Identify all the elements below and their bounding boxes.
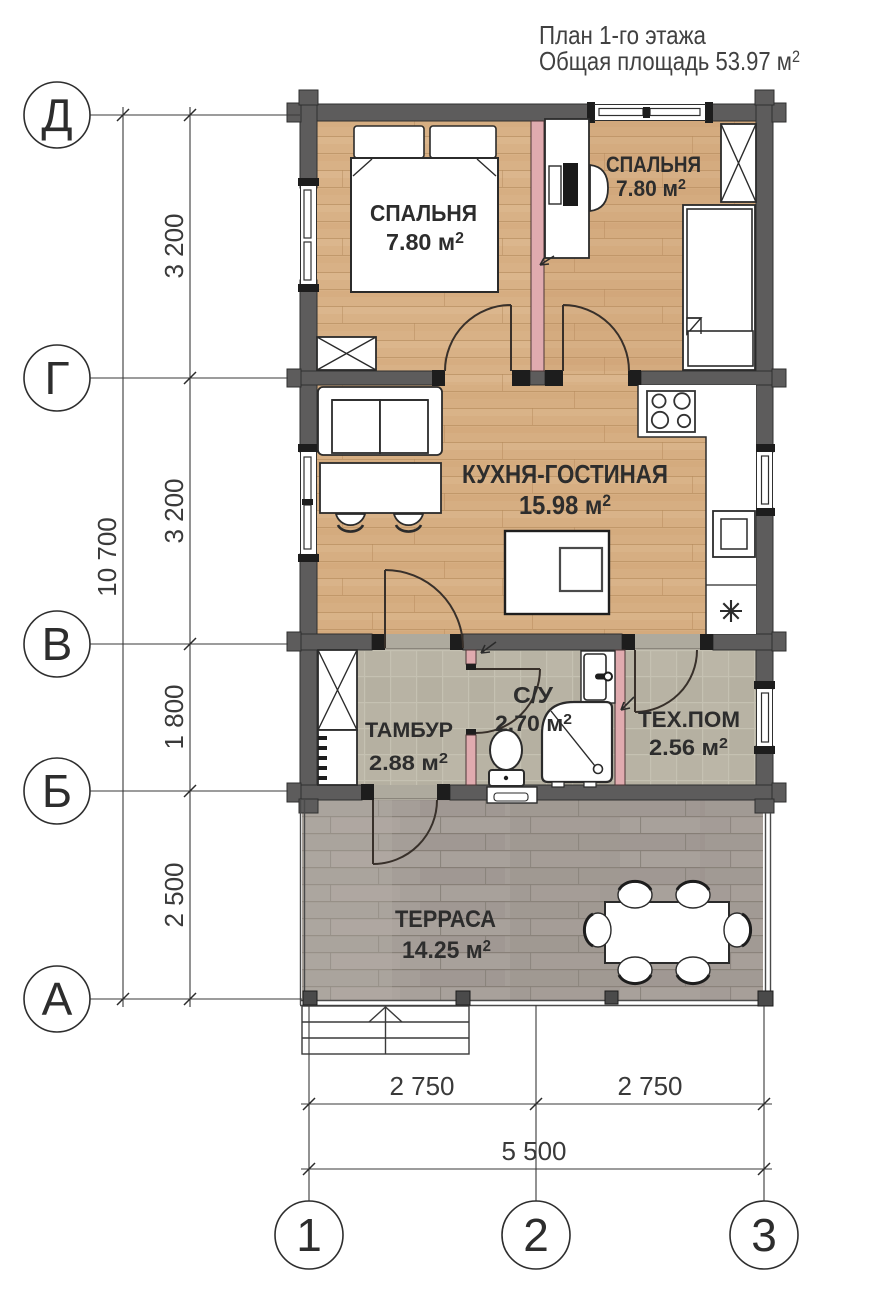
svg-text:3 200: 3 200 bbox=[159, 478, 189, 543]
svg-text:2 500: 2 500 bbox=[159, 862, 189, 927]
svg-text:2.70 м2: 2.70 м2 bbox=[495, 711, 572, 736]
svg-text:15.98 м2: 15.98 м2 bbox=[519, 490, 611, 520]
svg-text:Д: Д bbox=[41, 89, 72, 141]
svg-text:1 800: 1 800 bbox=[159, 684, 189, 749]
svg-text:5 500: 5 500 bbox=[501, 1136, 566, 1166]
svg-text:7.80 м2: 7.80 м2 bbox=[386, 229, 464, 255]
svg-text:В: В bbox=[42, 618, 73, 670]
svg-text:14.25 м2: 14.25 м2 bbox=[402, 937, 491, 964]
svg-text:3: 3 bbox=[751, 1209, 777, 1261]
svg-text:1: 1 bbox=[296, 1209, 322, 1261]
svg-text:ТЕХ.ПОМ: ТЕХ.ПОМ bbox=[638, 707, 740, 732]
svg-text:С/У: С/У bbox=[513, 682, 554, 708]
svg-text:7.80 м2: 7.80 м2 bbox=[616, 176, 686, 201]
svg-text:10 700: 10 700 bbox=[92, 517, 122, 597]
svg-text:2: 2 bbox=[523, 1209, 549, 1261]
svg-text:Б: Б bbox=[42, 765, 72, 817]
svg-text:КУХНЯ-ГОСТИНАЯ: КУХНЯ-ГОСТИНАЯ bbox=[462, 459, 668, 489]
svg-text:СПАЛЬНЯ: СПАЛЬНЯ bbox=[370, 200, 477, 226]
svg-text:2 750: 2 750 bbox=[389, 1071, 454, 1101]
svg-text:СПАЛЬНЯ: СПАЛЬНЯ bbox=[606, 152, 701, 177]
svg-text:Общая площадь 53.97 м2: Общая площадь 53.97 м2 bbox=[539, 46, 800, 76]
svg-text:2.56 м2: 2.56 м2 bbox=[649, 735, 728, 760]
svg-text:А: А bbox=[42, 973, 73, 1025]
svg-text:ТАМБУР: ТАМБУР bbox=[365, 718, 453, 742]
svg-text:ТЕРРАСА: ТЕРРАСА bbox=[395, 906, 496, 933]
svg-text:2 750: 2 750 bbox=[617, 1071, 682, 1101]
svg-text:2.88 м2: 2.88 м2 bbox=[369, 750, 448, 775]
svg-text:3 200: 3 200 bbox=[159, 213, 189, 278]
svg-text:Г: Г bbox=[45, 352, 70, 404]
